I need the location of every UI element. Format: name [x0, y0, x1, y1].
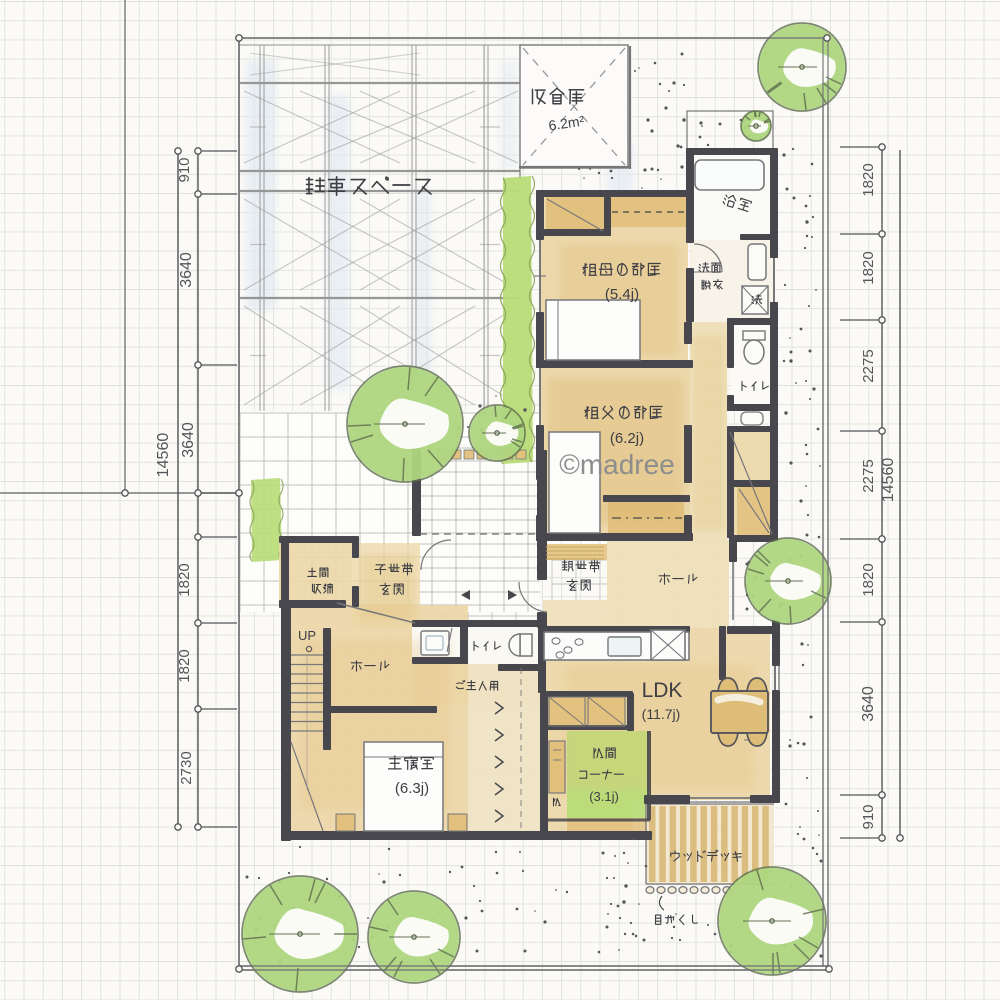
svg-text:1820: 1820: [860, 563, 877, 596]
svg-text:2730: 2730: [178, 751, 195, 784]
svg-text:910: 910: [860, 804, 877, 829]
svg-text:1820: 1820: [176, 563, 193, 596]
svg-text:3640: 3640: [178, 252, 195, 288]
svg-text:3640: 3640: [180, 422, 197, 458]
svg-text:1820: 1820: [176, 649, 193, 682]
svg-text:©madree: ©madree: [559, 449, 675, 480]
svg-text:1820: 1820: [860, 163, 877, 196]
svg-text:(6.3j): (6.3j): [395, 780, 429, 797]
svg-text:14560: 14560: [155, 433, 172, 478]
svg-text:3640: 3640: [860, 686, 877, 722]
svg-text:1820: 1820: [860, 251, 877, 284]
svg-text:(3.1j): (3.1j): [589, 789, 619, 804]
svg-text:(6.2j): (6.2j): [610, 430, 644, 447]
svg-text:UP: UP: [298, 628, 316, 643]
svg-text:2275: 2275: [860, 349, 877, 382]
svg-text:(5.4j): (5.4j): [605, 286, 639, 303]
svg-text:LDK: LDK: [642, 679, 683, 702]
svg-text:2275: 2275: [860, 459, 877, 492]
svg-text:910: 910: [176, 157, 193, 182]
svg-text:(11.7j): (11.7j): [642, 706, 681, 722]
svg-text:14560: 14560: [880, 458, 897, 503]
